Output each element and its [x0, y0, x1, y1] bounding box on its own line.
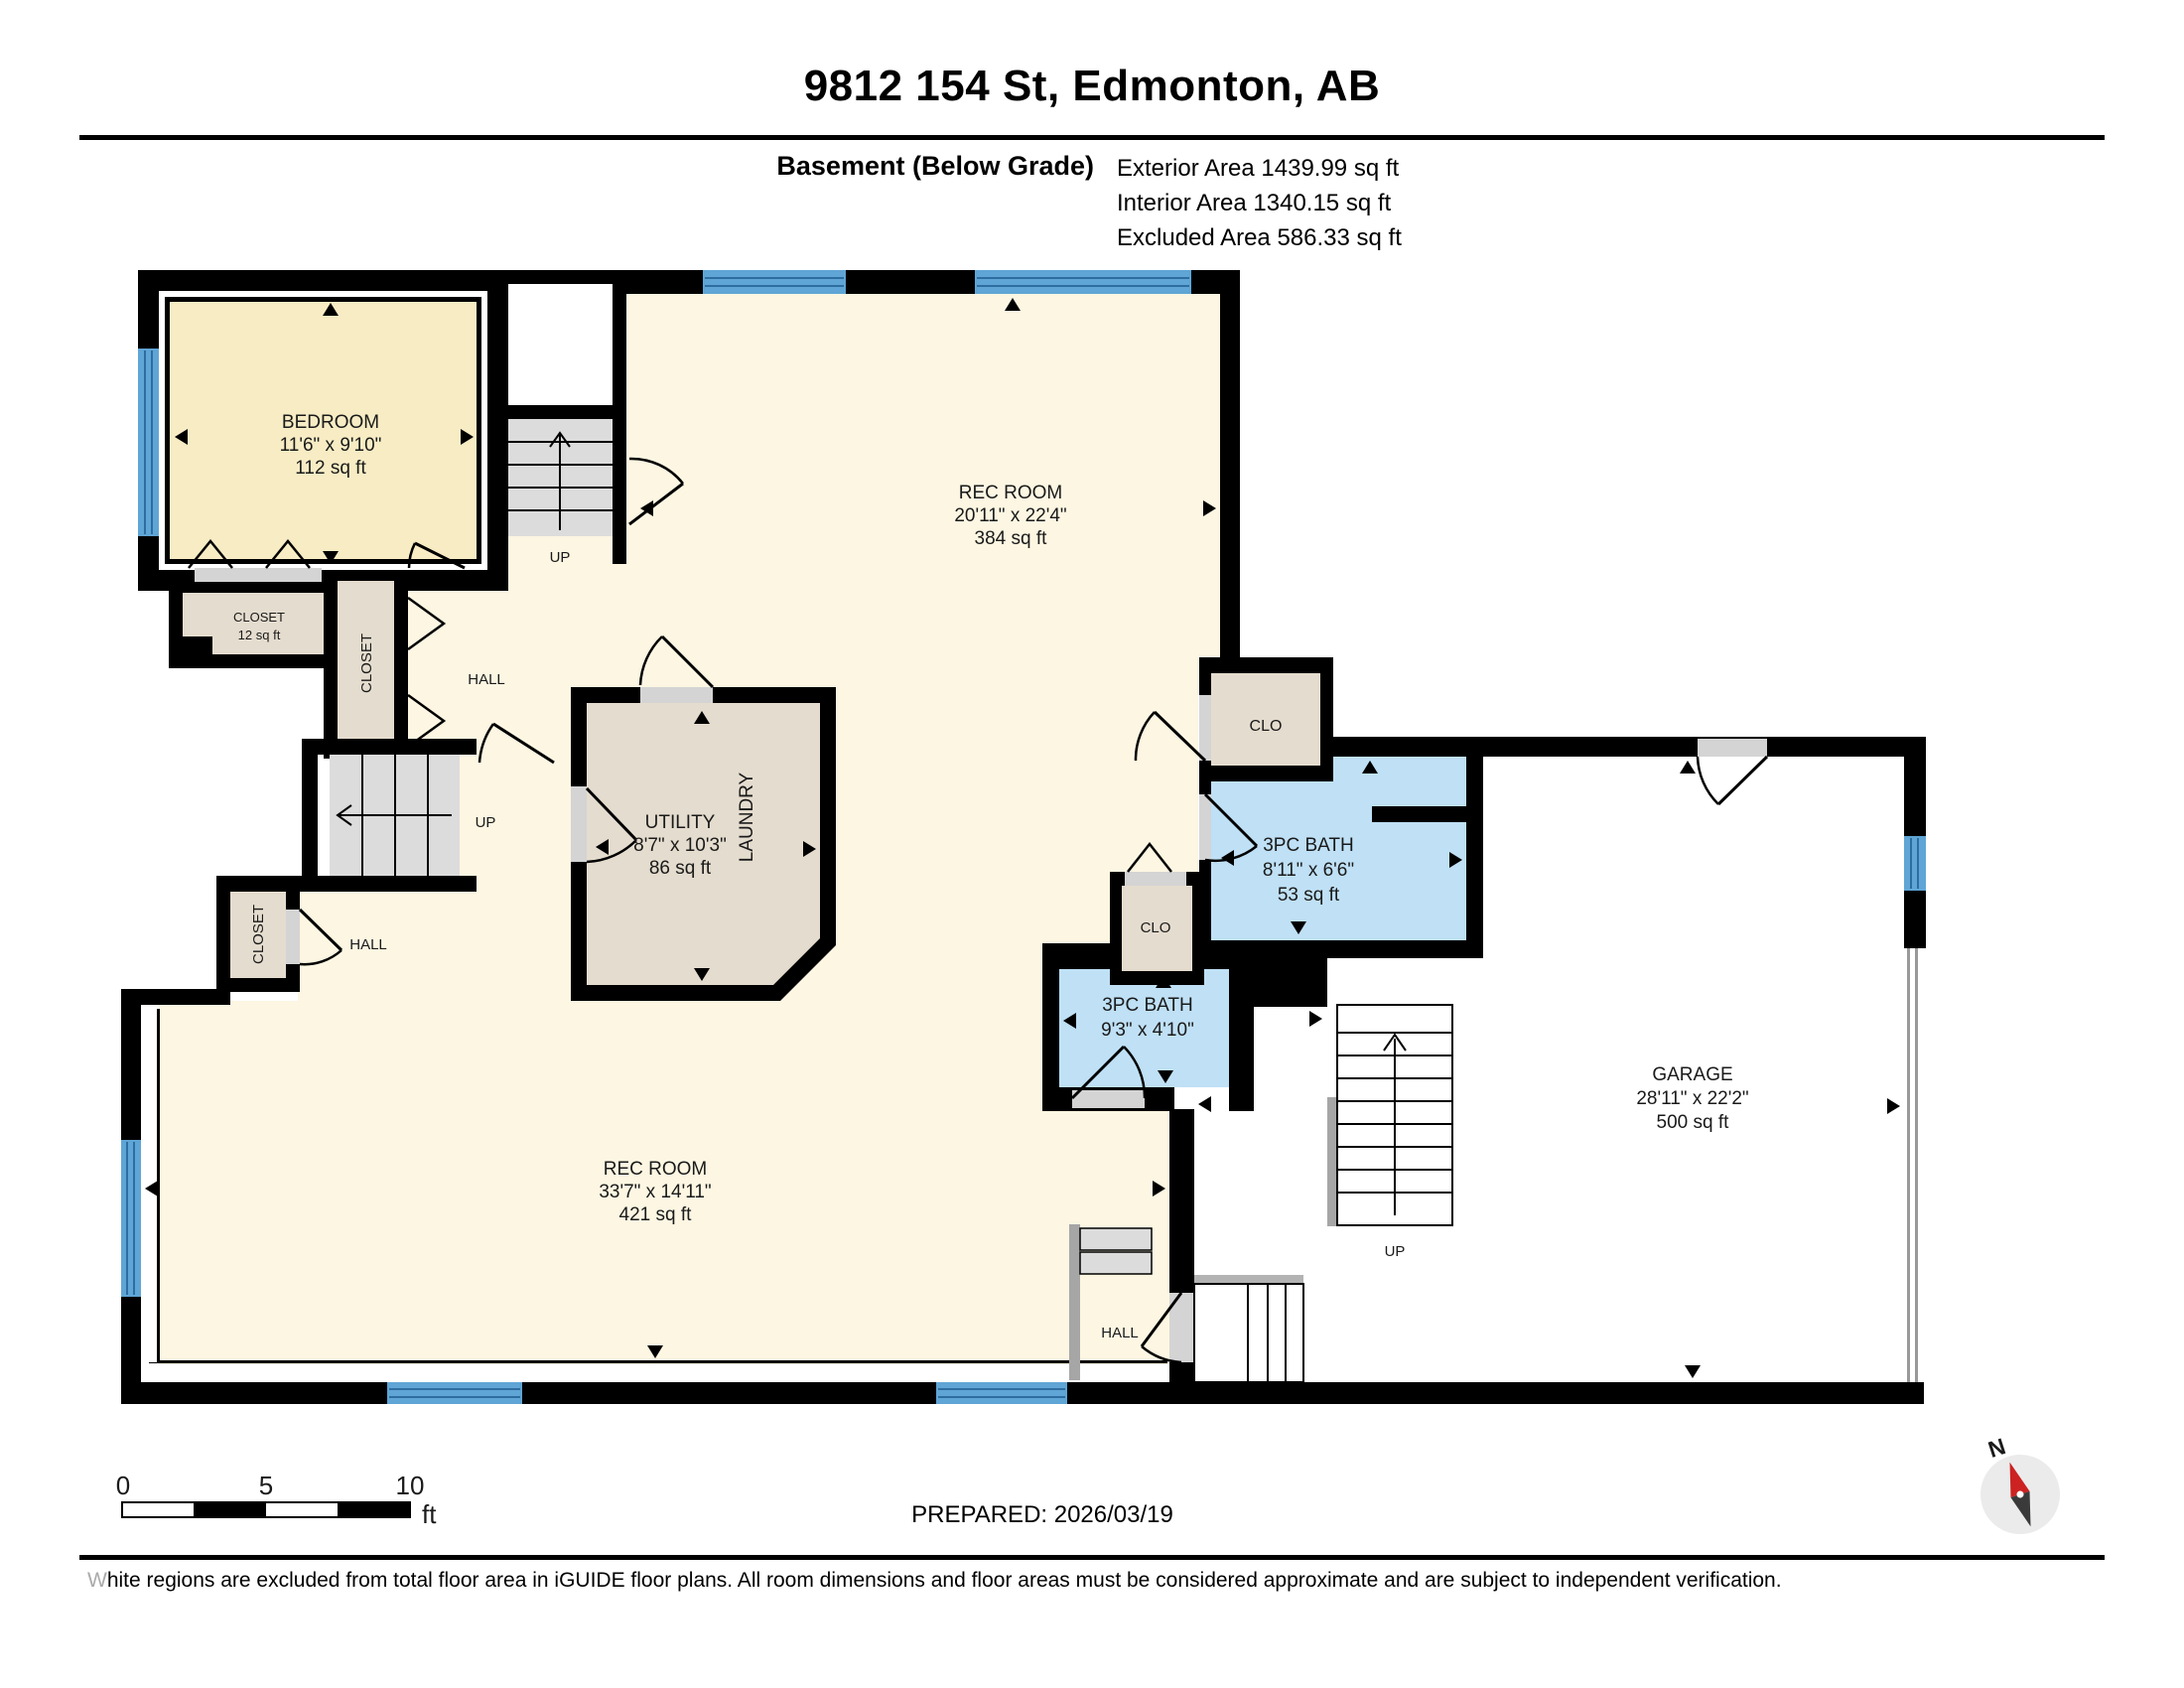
rec-upper-dims: 20'11" x 22'4"	[954, 505, 1066, 526]
stairs-middle	[302, 739, 477, 892]
bath-lower-name: 3PC BATH	[1102, 995, 1193, 1016]
utility-dims: 8'7" x 10'3"	[633, 835, 727, 856]
prepared-date: PREPARED: 2026/03/19	[0, 1501, 2085, 1529]
rec-lower-name: REC ROOM	[604, 1159, 708, 1180]
clo-upper-label: CLO	[1250, 718, 1283, 735]
garage-door-track	[1907, 948, 1910, 1382]
clo-lower-label: CLO	[1141, 919, 1171, 936]
bath-upper-dims: 8'11" x 6'6"	[1263, 860, 1354, 881]
floorplan-page: 9812 154 St, Edmonton, AB Basement (Belo…	[0, 0, 2184, 1688]
rec-lower-window-bottom-2	[936, 1382, 1067, 1404]
rec-upper-name: REC ROOM	[959, 483, 1063, 503]
rec-upper-window-1	[703, 270, 846, 294]
garage-area: 500 sq ft	[1657, 1112, 1730, 1133]
disclaimer-text: White regions are excluded from total fl…	[87, 1569, 2093, 1593]
hall-lower-label: HALL	[1101, 1325, 1139, 1341]
bath-lower-dims: 9'3" x 4'10"	[1101, 1020, 1194, 1041]
rec-lower-window-left	[121, 1140, 141, 1297]
garage-dims: 28'11" x 22'2"	[1636, 1088, 1748, 1109]
rec-upper-area: 384 sq ft	[975, 528, 1048, 549]
closet-bedroom-area: 12 sq ft	[238, 628, 281, 642]
bath-upper-area: 53 sq ft	[1278, 885, 1340, 906]
utility-area: 86 sq ft	[649, 858, 712, 879]
rec-upper-window-2	[975, 270, 1191, 294]
hall-upper-label: HALL	[468, 671, 505, 688]
closet-upper-label: CLOSET	[358, 633, 375, 693]
bath-upper-name: 3PC BATH	[1263, 835, 1354, 856]
garage-name: GARAGE	[1652, 1064, 1732, 1085]
floorplan-drawing: BEDROOM 11'6" x 9'10" 112 sq ft CLOSET 1…	[0, 0, 2184, 1688]
rec-lower-area: 421 sq ft	[619, 1204, 693, 1225]
scale-0: 0	[116, 1471, 130, 1500]
stairs-gar	[1327, 1005, 1452, 1226]
scale-5: 5	[259, 1471, 273, 1500]
closet-lower-label: CLOSET	[250, 905, 267, 964]
utility-name: UTILITY	[645, 812, 716, 833]
garage-window	[1904, 836, 1926, 891]
closet-bedroom-name: CLOSET	[233, 610, 285, 625]
entry-railing	[1069, 1224, 1080, 1380]
up-label-2: UP	[476, 814, 496, 831]
bedroom-window	[138, 349, 159, 536]
rec-lower-dims: 33'7" x 14'11"	[599, 1182, 711, 1202]
hall-middle-label: HALL	[349, 936, 387, 953]
garage-entry-door	[1698, 757, 1767, 804]
stairs-upper	[494, 270, 626, 564]
bedroom-dims: 11'6" x 9'10"	[280, 435, 382, 456]
north-label: N	[1984, 1433, 2008, 1463]
footer-divider	[79, 1555, 2105, 1560]
up-label-1: UP	[550, 549, 571, 566]
bedroom-area: 112 sq ft	[295, 458, 366, 479]
scale-10: 10	[396, 1471, 425, 1500]
garage-stairs-railing	[1327, 1097, 1337, 1226]
bedroom-name: BEDROOM	[282, 412, 379, 433]
up-label-3: UP	[1385, 1243, 1406, 1260]
rec-lower-window-bottom-1	[387, 1382, 522, 1404]
laundry-label: LAUNDRY	[737, 772, 757, 862]
entry-stairs	[1194, 1275, 1303, 1382]
